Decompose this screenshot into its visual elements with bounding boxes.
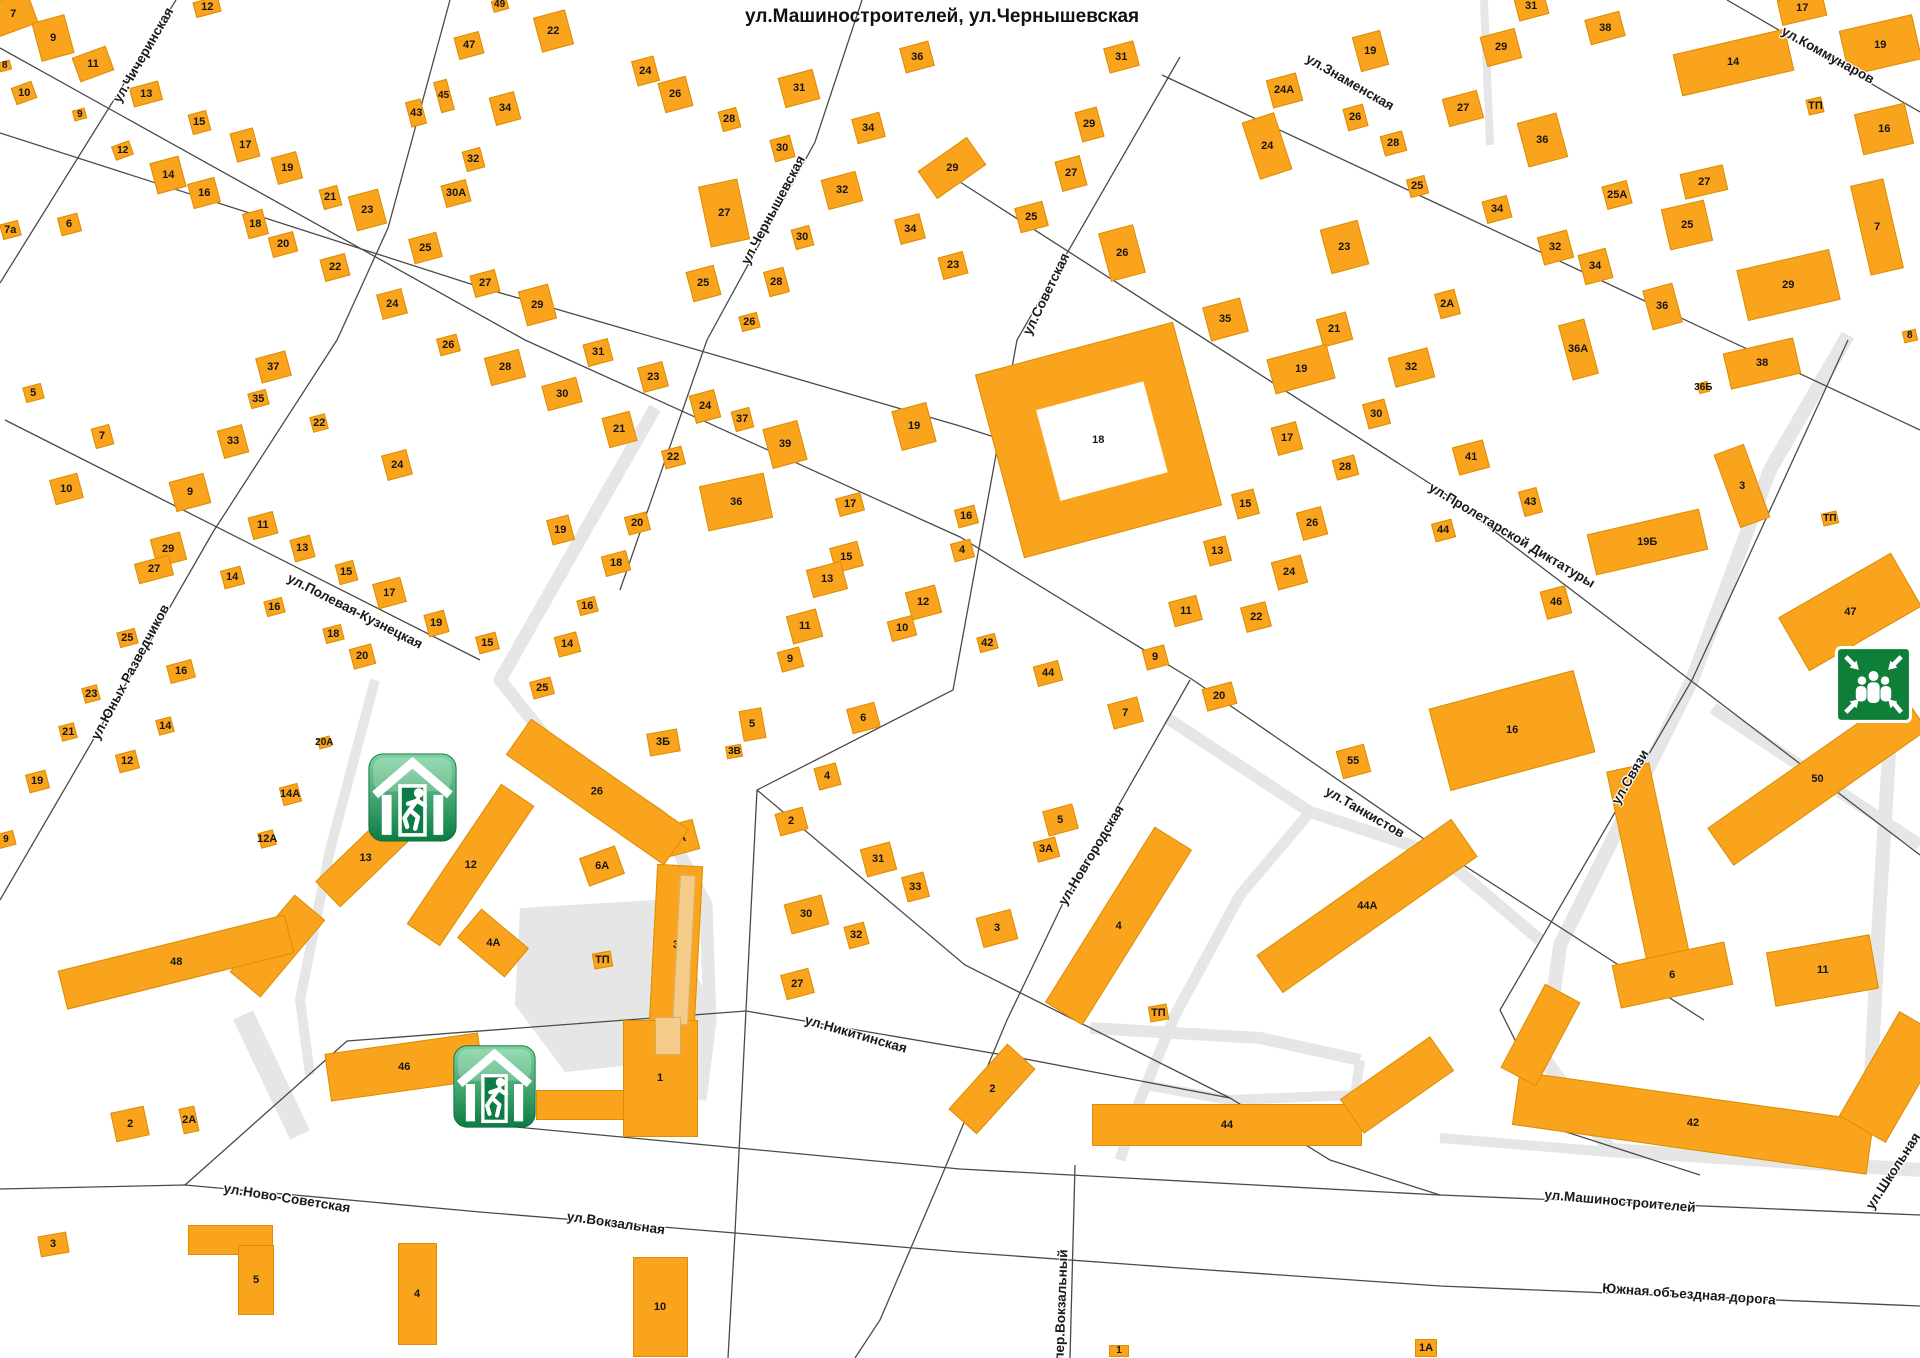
building-number: 17 xyxy=(239,140,251,151)
building-number: 15 xyxy=(193,117,205,128)
building-number: 3 xyxy=(50,1239,56,1250)
building-number: 26 xyxy=(1306,518,1318,529)
building-3Б: 3Б xyxy=(646,728,681,756)
building-number: 22 xyxy=(329,262,341,273)
building-number: 13 xyxy=(821,574,833,585)
building-number: 16 xyxy=(1506,725,1518,736)
building-number: 29 xyxy=(1495,42,1507,53)
building-number: 3А xyxy=(1039,844,1053,855)
building-number: 30 xyxy=(796,232,808,243)
building-number: 14 xyxy=(1727,57,1739,68)
building-number: 31 xyxy=(872,854,884,865)
building-number: 20А xyxy=(315,737,333,747)
building-number: 32 xyxy=(1549,242,1561,253)
building-number: 46 xyxy=(1550,597,1562,608)
building-number: 31 xyxy=(1115,52,1127,63)
building-number: 11 xyxy=(1816,965,1828,976)
building-number: 55 xyxy=(1347,756,1359,767)
building-number: ТП xyxy=(1823,513,1836,523)
street-line-per-vokzalny xyxy=(1070,1165,1075,1358)
building-number: 33 xyxy=(227,436,239,447)
building-number: 17 xyxy=(383,588,395,599)
building-number: 48 xyxy=(170,957,182,968)
building-number: 29 xyxy=(1782,280,1794,291)
building-number: 36 xyxy=(1656,301,1668,312)
building-number: 34 xyxy=(1491,204,1503,215)
building-number: 32 xyxy=(1405,362,1417,373)
building-number: 36 xyxy=(730,497,742,508)
building-number: 36Б xyxy=(1694,382,1712,392)
building-number: 39 xyxy=(779,439,791,450)
building-number: 6 xyxy=(66,219,72,230)
building-number: 29 xyxy=(1083,119,1095,130)
building-number: 25 xyxy=(1411,181,1423,192)
building-number: 27 xyxy=(148,564,160,575)
building xyxy=(655,1017,681,1055)
map-canvas[interactable]: 7911810121391512141617191820212322242567… xyxy=(0,0,1920,1358)
building-number: 3В xyxy=(728,746,741,756)
building-number: 9 xyxy=(50,33,56,44)
building-number: 24 xyxy=(639,66,651,77)
map-title: ул.Машиностроителей, ул.Чернышевская xyxy=(745,6,1139,28)
building-number: 34 xyxy=(1589,261,1601,272)
building-number: 12 xyxy=(201,2,213,13)
building-number: 38 xyxy=(1756,358,1768,369)
building-number: 16 xyxy=(198,188,210,199)
building-number: 34 xyxy=(862,123,874,134)
building-number: 25 xyxy=(697,278,709,289)
building-ТП: ТП xyxy=(1147,1003,1168,1022)
building-number: 23 xyxy=(647,372,659,383)
building-number: 14 xyxy=(226,572,238,583)
building-number: 18 xyxy=(1092,435,1104,446)
building-number: 2 xyxy=(989,1084,995,1095)
building-number: 7а xyxy=(4,225,16,236)
building-number: 29 xyxy=(162,544,174,555)
building-number: 20 xyxy=(277,239,289,250)
building-number: 22 xyxy=(313,418,325,429)
building-number: 26 xyxy=(743,317,755,328)
building-number: ТП xyxy=(1808,100,1823,111)
building-number: 44А xyxy=(1357,901,1377,912)
building-number: 24 xyxy=(386,299,398,310)
building-number: 5 xyxy=(253,1275,259,1286)
building-number: 19 xyxy=(1295,364,1307,375)
building-number: 6А xyxy=(595,861,609,872)
building-number: 37 xyxy=(267,362,279,373)
building-25: 25 xyxy=(1405,174,1428,197)
building-number: 22 xyxy=(667,452,679,463)
building-3В: 3В xyxy=(725,743,743,759)
building-number: 14А xyxy=(280,789,300,800)
building-number: 24 xyxy=(699,401,711,412)
building-number: 26 xyxy=(1349,112,1361,123)
building-number: 22 xyxy=(1250,612,1262,623)
building-number: 19 xyxy=(908,421,920,432)
building-number: 43 xyxy=(1524,497,1536,508)
building-number: 5 xyxy=(749,719,755,730)
building-number: 20 xyxy=(356,651,368,662)
building-number: 13 xyxy=(359,853,371,864)
building-number: 36 xyxy=(911,52,923,63)
building-number: 18 xyxy=(327,629,339,640)
building-number: 1 xyxy=(657,1073,663,1084)
building-number: 14 xyxy=(561,639,573,650)
building-number: 19 xyxy=(1874,40,1886,51)
building-number: 28 xyxy=(499,362,511,373)
building-number: 15 xyxy=(481,638,493,649)
building-number: 9 xyxy=(1152,652,1158,663)
building-number: 16 xyxy=(1878,124,1890,135)
building-number: 35 xyxy=(252,394,264,405)
building-number: 6 xyxy=(1669,970,1675,981)
building-number: 27 xyxy=(1065,168,1077,179)
building-number: 23 xyxy=(1338,242,1350,253)
building-number: 20 xyxy=(631,518,643,529)
building-number: 16 xyxy=(960,511,972,522)
building-number: 30 xyxy=(800,909,812,920)
building-number: 24 xyxy=(391,460,403,471)
building-number: 36 xyxy=(1536,135,1548,146)
building-number: 49 xyxy=(494,0,505,10)
building-number: 1А xyxy=(1419,1343,1433,1354)
building-number: 16 xyxy=(175,666,187,677)
building-number: 30 xyxy=(556,389,568,400)
building-number: 15 xyxy=(340,567,352,578)
building-number: 4 xyxy=(414,1289,420,1300)
building-number: 9 xyxy=(3,834,9,844)
building-number: 12А xyxy=(257,834,277,845)
building-number: 28 xyxy=(1339,462,1351,473)
building-number: 6 xyxy=(860,713,866,724)
building-number: 29 xyxy=(946,163,958,174)
building-number: 27 xyxy=(791,979,803,990)
building-number: 34 xyxy=(904,224,916,235)
assembly-point-icon[interactable] xyxy=(1835,642,1912,727)
building xyxy=(536,1090,624,1120)
building-number: 13 xyxy=(1211,546,1223,557)
building-number: 26 xyxy=(1116,248,1128,259)
building-number: 25 xyxy=(1025,212,1037,223)
building-number: 26 xyxy=(591,787,603,798)
building-number: 25 xyxy=(1681,220,1693,231)
road-network xyxy=(0,0,1920,1358)
building-number: 30 xyxy=(1370,409,1382,420)
building-number: 45 xyxy=(438,91,449,101)
building-number: 26 xyxy=(442,340,454,351)
building-number: ТП xyxy=(1151,1008,1166,1019)
building-number: 4 xyxy=(1115,921,1121,932)
building-number: 17 xyxy=(1281,433,1293,444)
building-number: 18 xyxy=(249,219,261,230)
building-number: 12 xyxy=(917,597,929,608)
building-number: 43 xyxy=(410,108,422,119)
building-number: 47 xyxy=(463,40,475,51)
building-number: 10 xyxy=(896,623,908,634)
building-number: 11 xyxy=(87,59,99,70)
building-number: 15 xyxy=(840,552,852,563)
building-number: 42 xyxy=(1687,1118,1699,1129)
building-number: 3 xyxy=(1739,481,1745,492)
building-number: 27 xyxy=(479,278,491,289)
building-number: 19Б xyxy=(1637,537,1657,548)
building-number: 25А xyxy=(1607,190,1627,201)
building-number: 21 xyxy=(62,727,74,738)
building-number: 37 xyxy=(736,414,748,425)
building-number: 22 xyxy=(547,26,559,37)
building-number: 7 xyxy=(99,431,105,442)
building-number: 35 xyxy=(1219,314,1231,325)
building-number: 16 xyxy=(581,601,593,612)
building-number: 3Б xyxy=(656,737,670,748)
building-number: 28 xyxy=(770,277,782,288)
building-number: 11 xyxy=(1179,606,1191,617)
building-number: 24 xyxy=(1261,141,1273,152)
building-number: 47 xyxy=(1844,607,1856,618)
building-number: 2А xyxy=(182,1115,196,1126)
building-number: 27 xyxy=(718,208,730,219)
building-14А: 14А xyxy=(278,782,301,805)
building-44: 44 xyxy=(1092,1104,1362,1146)
building-number: 16 xyxy=(268,602,280,613)
building-number: 32 xyxy=(836,185,848,196)
street-line-polevaya-kuznetskaya xyxy=(5,420,480,660)
building-number: 9 xyxy=(187,487,193,498)
building-number: 23 xyxy=(361,205,373,216)
building-number: 2А xyxy=(1440,299,1454,310)
building-4: 4 xyxy=(398,1243,437,1345)
building-number: 12 xyxy=(464,860,476,871)
building-number: 12 xyxy=(121,756,133,767)
building-number: 21 xyxy=(1328,324,1340,335)
building-number: 9 xyxy=(787,654,793,665)
building-number: 21 xyxy=(613,424,625,435)
building-number: ТП xyxy=(595,955,610,966)
building-number: 24А xyxy=(1274,85,1294,96)
building-number: 19 xyxy=(430,618,442,629)
building-number: 19 xyxy=(31,776,43,787)
building-number: 5 xyxy=(1057,815,1063,826)
building-number: 15 xyxy=(1239,499,1251,510)
building-number: 11 xyxy=(798,621,810,632)
building-number: 42 xyxy=(981,638,993,649)
building-number: 12 xyxy=(116,145,127,155)
emergency-exit-icon[interactable] xyxy=(452,1045,537,1128)
building-36Б: 36Б xyxy=(1696,380,1709,393)
building-number: 17 xyxy=(1796,2,1808,13)
building-number: 3 xyxy=(994,923,1000,934)
building-number: 2 xyxy=(127,1119,133,1130)
building-ТП: ТП xyxy=(591,950,612,969)
building-number: 7 xyxy=(1122,708,1128,719)
building-number: 2 xyxy=(788,816,794,827)
building-number: 46 xyxy=(398,1062,410,1073)
building-number: 31 xyxy=(592,347,604,358)
building-number: 44 xyxy=(1042,668,1054,679)
building-number: 27 xyxy=(1457,103,1469,114)
building-number: 31 xyxy=(1525,1,1537,12)
building-number: 7 xyxy=(1874,222,1880,233)
building-number: 4А xyxy=(486,938,500,949)
building-number: 8 xyxy=(1907,331,1913,341)
building-number: 14 xyxy=(159,721,171,732)
building-number: 7 xyxy=(10,9,16,20)
building-number: 29 xyxy=(531,300,543,311)
building-20А: 20А xyxy=(316,735,331,749)
building-number: 13 xyxy=(296,543,308,554)
building-number: 44 xyxy=(1437,525,1449,536)
building-number: 32 xyxy=(467,154,479,165)
building-number: 9 xyxy=(76,109,82,119)
building-number: 19 xyxy=(554,525,566,536)
building-number: 5 xyxy=(30,388,36,399)
building-number: 30 xyxy=(776,143,788,154)
building-number: 24 xyxy=(1283,567,1295,578)
building-number: 44 xyxy=(1221,1120,1233,1131)
building-number: 41 xyxy=(1465,452,1477,463)
building-number: 18 xyxy=(610,558,622,569)
building-number: 10 xyxy=(60,484,72,495)
building-3: 3 xyxy=(37,1231,69,1257)
building-1: 1 xyxy=(1109,1345,1129,1357)
building-number: 50 xyxy=(1811,774,1823,785)
building-number: 27 xyxy=(1698,177,1710,188)
building-number: 28 xyxy=(723,114,735,125)
building-10: 10 xyxy=(633,1257,688,1357)
emergency-exit-icon[interactable] xyxy=(368,753,457,842)
building-number: 23 xyxy=(85,689,97,700)
building-number: 34 xyxy=(499,103,511,114)
building-number: 38 xyxy=(1599,23,1611,34)
building-number: 4 xyxy=(824,771,830,782)
building-number: 36А xyxy=(1568,344,1588,355)
building-number: 31 xyxy=(793,83,805,94)
building-number: 26 xyxy=(669,89,681,100)
building-number: 19 xyxy=(281,163,293,174)
building-number: 32 xyxy=(850,930,862,941)
building-number: 25 xyxy=(536,683,548,694)
building-number: 25 xyxy=(419,243,431,254)
building-number: 1 xyxy=(1116,1346,1122,1356)
building-number: 17 xyxy=(844,499,856,510)
building-number: 25 xyxy=(121,633,133,644)
building-5: 5 xyxy=(738,707,766,742)
building-4: 4 xyxy=(813,762,841,790)
building-number: 33 xyxy=(909,882,921,893)
building-number: 20 xyxy=(1213,691,1225,702)
building-number: 4 xyxy=(959,545,965,556)
building-number: 28 xyxy=(1387,138,1399,149)
building-number: 21 xyxy=(324,192,336,203)
building-number: 13 xyxy=(140,89,152,100)
building-5: 5 xyxy=(238,1245,274,1315)
building-number: 30А xyxy=(446,188,466,199)
building-number: 10 xyxy=(654,1302,666,1313)
building-number: 23 xyxy=(947,260,959,271)
building-1А: 1А xyxy=(1415,1339,1437,1357)
building-number: 14 xyxy=(162,170,174,181)
building-number: 10 xyxy=(18,88,30,99)
building-number: 8 xyxy=(2,61,8,71)
building-number: 11 xyxy=(257,520,269,531)
building-number: 19 xyxy=(1364,46,1376,57)
